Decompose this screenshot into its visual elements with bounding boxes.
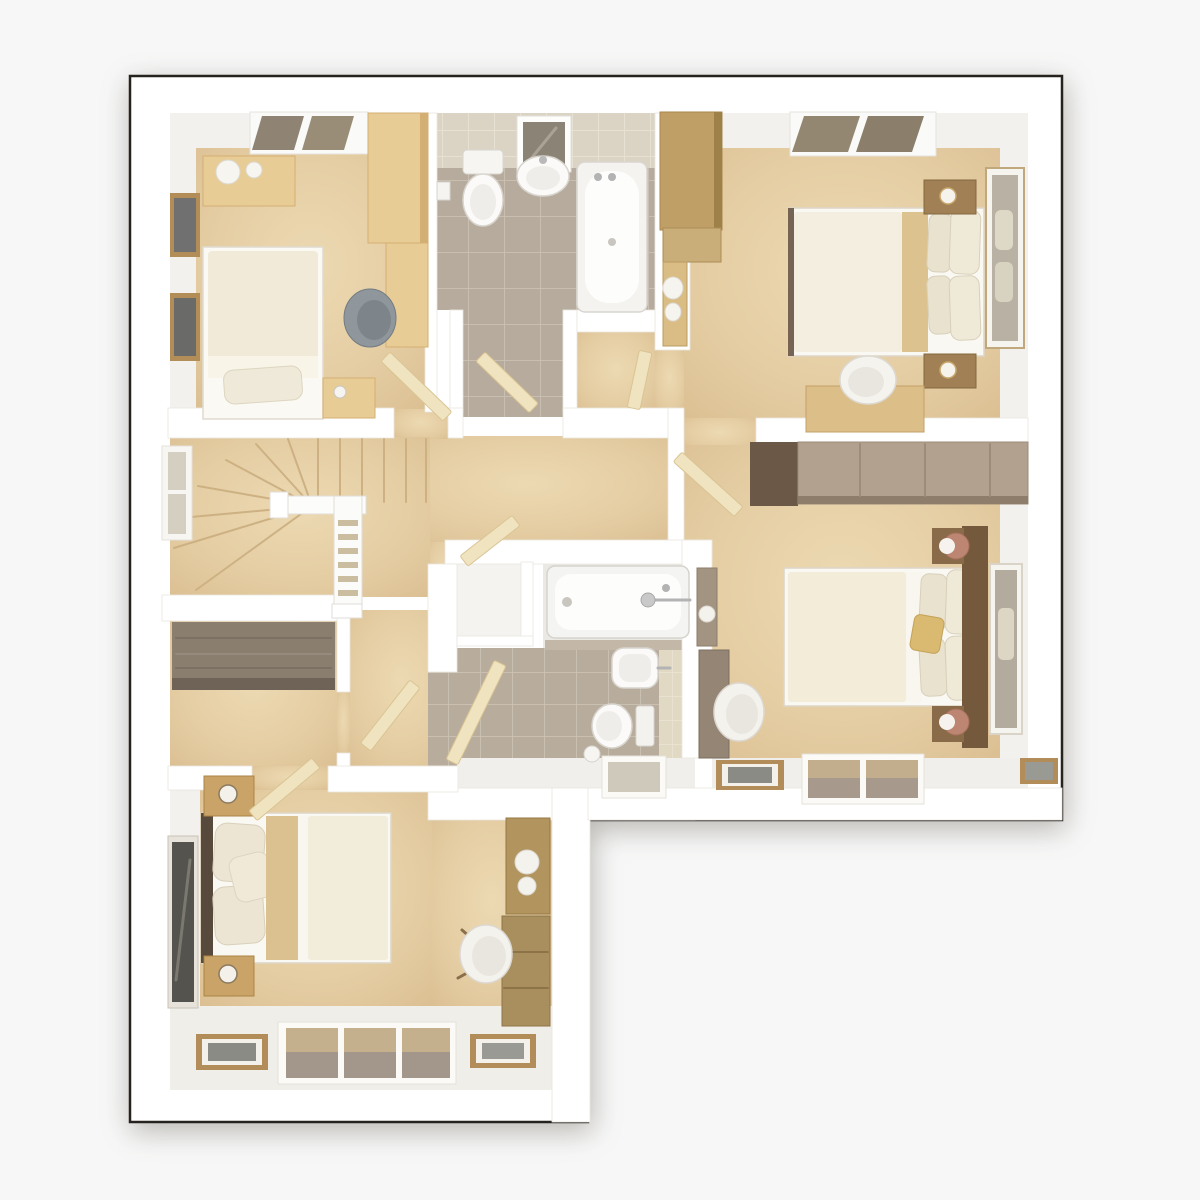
banister-newel-bottom — [332, 604, 362, 618]
bed4-window-pane1-top — [286, 1028, 338, 1052]
bed1-wardrobe-edge — [798, 496, 1028, 504]
bed2-duvet — [794, 212, 902, 352]
store-doorway-carpet — [337, 692, 350, 753]
bed2-towel1 — [663, 277, 683, 299]
ensuite-cistern — [636, 706, 654, 746]
bed4-sheet-band — [298, 816, 308, 960]
bathtub-inner — [585, 171, 639, 303]
bath-sink-tap — [539, 156, 547, 164]
bed4-lamp-bottom — [219, 965, 237, 983]
bed1-picture2-art — [1025, 762, 1053, 780]
store — [172, 622, 335, 690]
bed3-wardrobe — [368, 113, 428, 243]
stairs-carpet — [170, 437, 430, 597]
banister-gap-1 — [338, 520, 358, 526]
bed1-dresser-lamp — [699, 606, 715, 622]
wall-airing-lip — [457, 636, 533, 646]
store-wardrobe-front — [172, 678, 335, 690]
bed3-art2 — [174, 298, 196, 356]
banister-gap-4 — [338, 562, 358, 568]
bed4-window-pane3-bot — [402, 1052, 450, 1078]
banister-gap-2 — [338, 534, 358, 540]
bathtub-tap2 — [608, 173, 616, 181]
bed4-vanity-chest — [502, 916, 550, 1026]
bed2-mirror-glass — [992, 175, 1018, 341]
bed1-wardrobe — [798, 442, 1028, 504]
bathtub-tap1 — [594, 173, 602, 181]
bed4-duvet — [308, 816, 388, 960]
ensuite-sink-bowl — [619, 654, 651, 682]
bathtub-drain — [608, 238, 616, 246]
bed1-lamp-bottom-ball — [939, 714, 955, 730]
bed4-picture2-art — [482, 1043, 524, 1059]
bed3-clock — [334, 386, 346, 398]
ensuite-toilet-seat — [596, 711, 622, 741]
bed2-window-pane-right — [856, 116, 924, 152]
bed2-mirror-refl1 — [995, 210, 1013, 250]
wall-stairs-bulkhead — [162, 595, 340, 621]
bed2-pillow3 — [949, 209, 981, 274]
bed3-art1 — [174, 198, 196, 252]
wall-bed2-entry-cap — [577, 310, 655, 332]
bed3-dresser-lamp2 — [246, 162, 262, 178]
bedroom2-entry-carpet2 — [655, 348, 684, 414]
bed4-vanity-ball — [518, 877, 536, 895]
bed2-wardrobe — [660, 112, 722, 230]
wall-wing-east — [552, 788, 590, 1122]
bed2-mirror-refl2 — [995, 262, 1013, 302]
bed2-pillow4 — [949, 275, 981, 340]
stair-window-pane1 — [168, 452, 186, 490]
banister-gap-3 — [338, 548, 358, 554]
bed3-nightstand — [323, 378, 375, 418]
bed2-towel2 — [665, 303, 681, 321]
floor-plan-image — [0, 0, 1200, 1200]
bed1-duvet — [788, 572, 906, 702]
bath-toilet-tank — [463, 150, 503, 174]
bed2-bed-foot-edge — [788, 208, 794, 356]
bed4-lamp-top — [219, 785, 237, 803]
bed1-mirror-refl — [998, 608, 1014, 660]
bed2-lamp-bottom — [940, 362, 956, 378]
bed3-wardrobe-side — [420, 113, 428, 243]
banister-gap-5 — [338, 576, 358, 582]
shower-head — [641, 593, 655, 607]
ensuite-window-pane — [608, 762, 660, 792]
store-wardrobe-top — [172, 622, 335, 682]
bed2-chair-seat — [848, 367, 884, 397]
bed4-window-pane2-bot — [344, 1052, 396, 1078]
wall-landing-north-c — [563, 408, 673, 438]
ensuite-toilet-roll — [584, 746, 600, 762]
wall-airing-right — [521, 562, 533, 644]
bed2-lamp-top — [940, 188, 956, 204]
bed1-window-pane1-top — [808, 760, 860, 778]
wall-landing-bed1 — [668, 408, 684, 542]
bed4-vanity-mirror — [515, 850, 539, 874]
bed1-window-pane1-bot — [808, 778, 860, 798]
bedroom3-wall-face-left — [170, 148, 196, 410]
stair-window-pane2 — [168, 494, 186, 534]
wall-bed4-north — [328, 766, 458, 792]
bed3-dresser-lamp1 — [216, 160, 240, 184]
bath-sink-bowl — [526, 166, 560, 190]
bed3-duvet — [208, 251, 318, 363]
bed4-picture1-art — [208, 1043, 256, 1061]
floor-plan-page — [0, 0, 1200, 1200]
bed1-window-pane2-bot — [866, 778, 918, 798]
wall-bath-lower-right — [563, 310, 577, 412]
bed4-headboard — [201, 813, 213, 963]
bed1-chair-seat — [726, 694, 758, 734]
bed4-chair-seat — [472, 936, 506, 976]
bed2-window-pane-left — [792, 116, 860, 152]
bed1-lamp-top-ball — [939, 538, 955, 554]
bed4-window-pane3-top — [402, 1028, 450, 1052]
bed2-runner — [902, 212, 928, 352]
shower-drain — [562, 597, 572, 607]
bed1-picture1-art — [728, 767, 772, 783]
bath-toilet-seat — [470, 184, 496, 220]
bed4-runner — [266, 816, 298, 960]
bed4-window-pane2-top — [344, 1028, 396, 1052]
banister-newel-left — [270, 492, 288, 518]
shower-valve — [662, 584, 670, 592]
bed1-window-pane2-top — [866, 760, 918, 778]
banister-gap-6 — [338, 590, 358, 596]
wall-ensuite-left-upper — [428, 564, 457, 672]
wall-bath-lower-left — [450, 310, 463, 412]
bed3-chair-seat — [357, 300, 391, 340]
bed1-wardrobe-dark — [750, 442, 798, 506]
bed1-cushion-gold — [909, 614, 945, 655]
bed4-window-pane1-bot — [286, 1052, 338, 1078]
airing-cupboard-floor — [457, 562, 521, 638]
shower-tray-inner — [555, 574, 681, 630]
bed3-pillow — [223, 365, 303, 404]
bed2-shelf — [663, 228, 721, 262]
bath-roll-holder — [437, 182, 450, 200]
bed2-wardrobe-side — [714, 112, 722, 230]
